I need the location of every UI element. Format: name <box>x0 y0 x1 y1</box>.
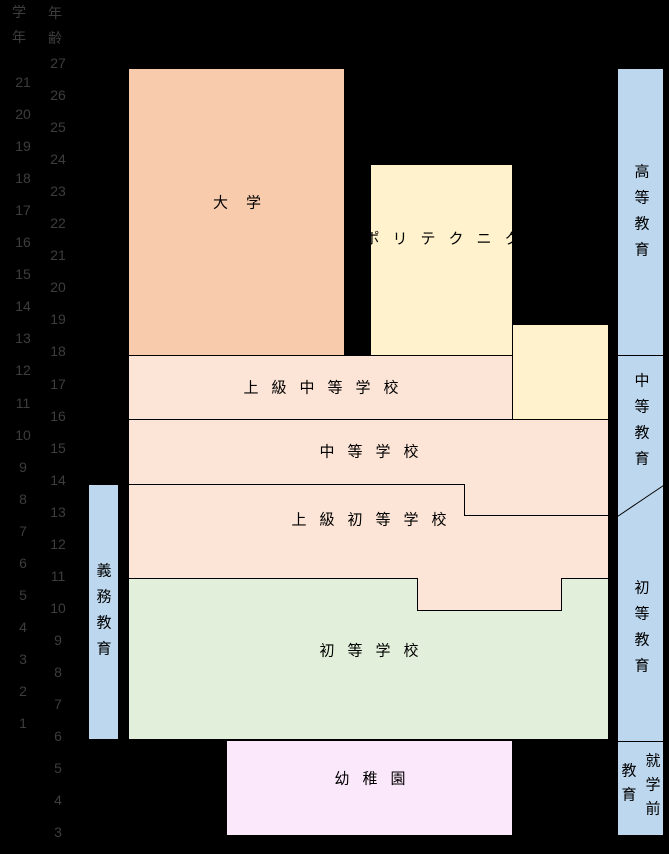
grade-number: 11 <box>16 396 31 410</box>
age-number: 21 <box>50 248 66 262</box>
secondary-label: 中等学校 <box>306 445 431 460</box>
age-number: 25 <box>50 120 66 134</box>
age-number: 10 <box>50 601 66 615</box>
primary-label: 初等学校 <box>306 644 431 659</box>
grade-number: 5 <box>19 588 27 602</box>
age-number: 27 <box>50 56 66 70</box>
education-system-diagram: 学年 年齢 212019181716151413121110987654321 … <box>0 0 669 854</box>
grade-number: 1 <box>19 716 27 730</box>
primary-education-label: 初等教育 <box>634 569 649 684</box>
age-number: 4 <box>54 793 62 807</box>
age-number: 17 <box>50 377 66 391</box>
polytechnic-label: ポリテクニク <box>351 232 532 247</box>
secondary-education-label: 中等教育 <box>634 362 649 477</box>
age-number: 6 <box>54 729 62 743</box>
grade-number: 9 <box>19 460 27 474</box>
grade-number: 16 <box>15 235 31 249</box>
age-number: 7 <box>54 697 62 711</box>
grade-number: 6 <box>19 556 27 570</box>
grade-number: 12 <box>15 363 31 377</box>
compulsory-education-label: 義務教育 <box>96 552 111 667</box>
university-label: 大学 <box>195 196 279 211</box>
age-number: 19 <box>50 312 66 326</box>
grade-column-header: 学年 <box>12 0 26 55</box>
polytechnic-box <box>371 165 513 356</box>
grade-number: 2 <box>19 684 27 698</box>
age-number: 9 <box>54 633 62 647</box>
upper-secondary-label: 上級中等学校 <box>230 381 411 396</box>
grade-number: 10 <box>15 428 31 442</box>
grade-number: 17 <box>15 203 31 217</box>
age-number: 22 <box>50 216 66 230</box>
grade-number: 8 <box>19 492 27 506</box>
preschool-education-label-line1: 就学前 <box>645 744 660 825</box>
age-number: 3 <box>54 825 62 839</box>
age-number: 11 <box>51 569 66 583</box>
kindergarten-box <box>227 741 513 836</box>
grade-number: 19 <box>15 139 31 153</box>
grade-number: 7 <box>19 524 27 538</box>
age-number: 13 <box>50 505 66 519</box>
age-number: 26 <box>50 88 66 102</box>
polytechnic-extension-box <box>513 325 609 420</box>
age-number: 15 <box>50 441 66 455</box>
age-number: 5 <box>54 761 62 775</box>
upper-primary-label: 上級初等学校 <box>278 513 459 528</box>
preschool-education-label-line2: 教育 <box>621 754 636 811</box>
kindergarten-label: 幼稚園 <box>321 772 418 787</box>
higher-education-label: 高等教育 <box>634 153 649 268</box>
age-number: 24 <box>50 152 66 166</box>
grade-number: 18 <box>15 171 31 185</box>
age-number: 16 <box>50 409 66 423</box>
age-number: 12 <box>50 537 66 551</box>
age-number: 8 <box>54 665 62 679</box>
grade-number: 14 <box>15 299 31 313</box>
university-box <box>129 69 345 356</box>
grade-number: 3 <box>19 652 27 666</box>
grade-number: 20 <box>15 107 31 121</box>
grade-number: 4 <box>19 620 27 634</box>
age-column-header: 年齢 <box>48 0 62 56</box>
age-number: 14 <box>50 473 66 487</box>
grade-number: 15 <box>15 267 31 281</box>
grade-number: 13 <box>15 331 31 345</box>
age-number: 18 <box>50 344 66 358</box>
age-number: 20 <box>50 280 66 294</box>
age-number: 23 <box>50 184 66 198</box>
diagram-canvas <box>0 0 669 854</box>
grade-number: 21 <box>15 75 31 89</box>
